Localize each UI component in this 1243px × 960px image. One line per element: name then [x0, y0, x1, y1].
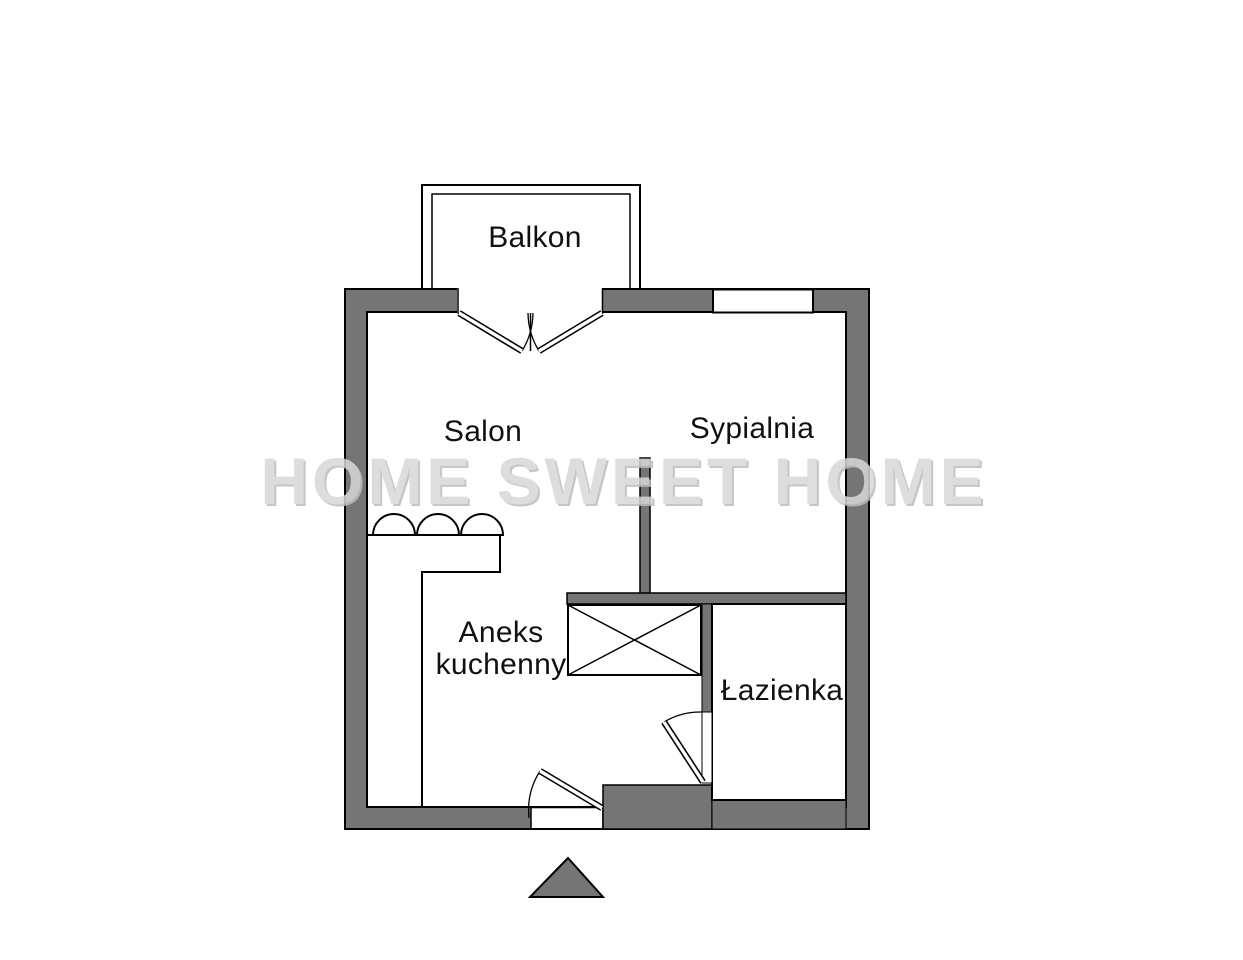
room-label-sypialnia: Sypialnia — [690, 413, 814, 445]
room-label-aneks-line2: kuchenny — [436, 649, 567, 681]
room-label-aneks-line1: Aneks — [436, 617, 567, 649]
floor-plan: Balkon Salon Sypialnia Aneks kuchenny Ła… — [0, 0, 1243, 960]
balcony-door-opening — [457, 287, 603, 314]
hall-wall-horizontal — [567, 593, 846, 604]
room-label-balkon: Balkon — [488, 222, 582, 254]
room-label-aneks-kuchenny: Aneks kuchenny — [436, 617, 567, 681]
bedroom-window — [713, 290, 813, 313]
entrance-wall-block — [603, 785, 712, 829]
entrance-arrow — [530, 858, 603, 897]
entrance-opening — [531, 809, 602, 829]
bathroom-door-opening — [702, 712, 712, 783]
wall-under-bathroom — [712, 798, 846, 829]
watermark: HOME SWEET HOME — [260, 443, 987, 519]
room-label-lazienka: Łazienka — [721, 675, 844, 707]
bathroom-left-wall — [702, 604, 712, 712]
